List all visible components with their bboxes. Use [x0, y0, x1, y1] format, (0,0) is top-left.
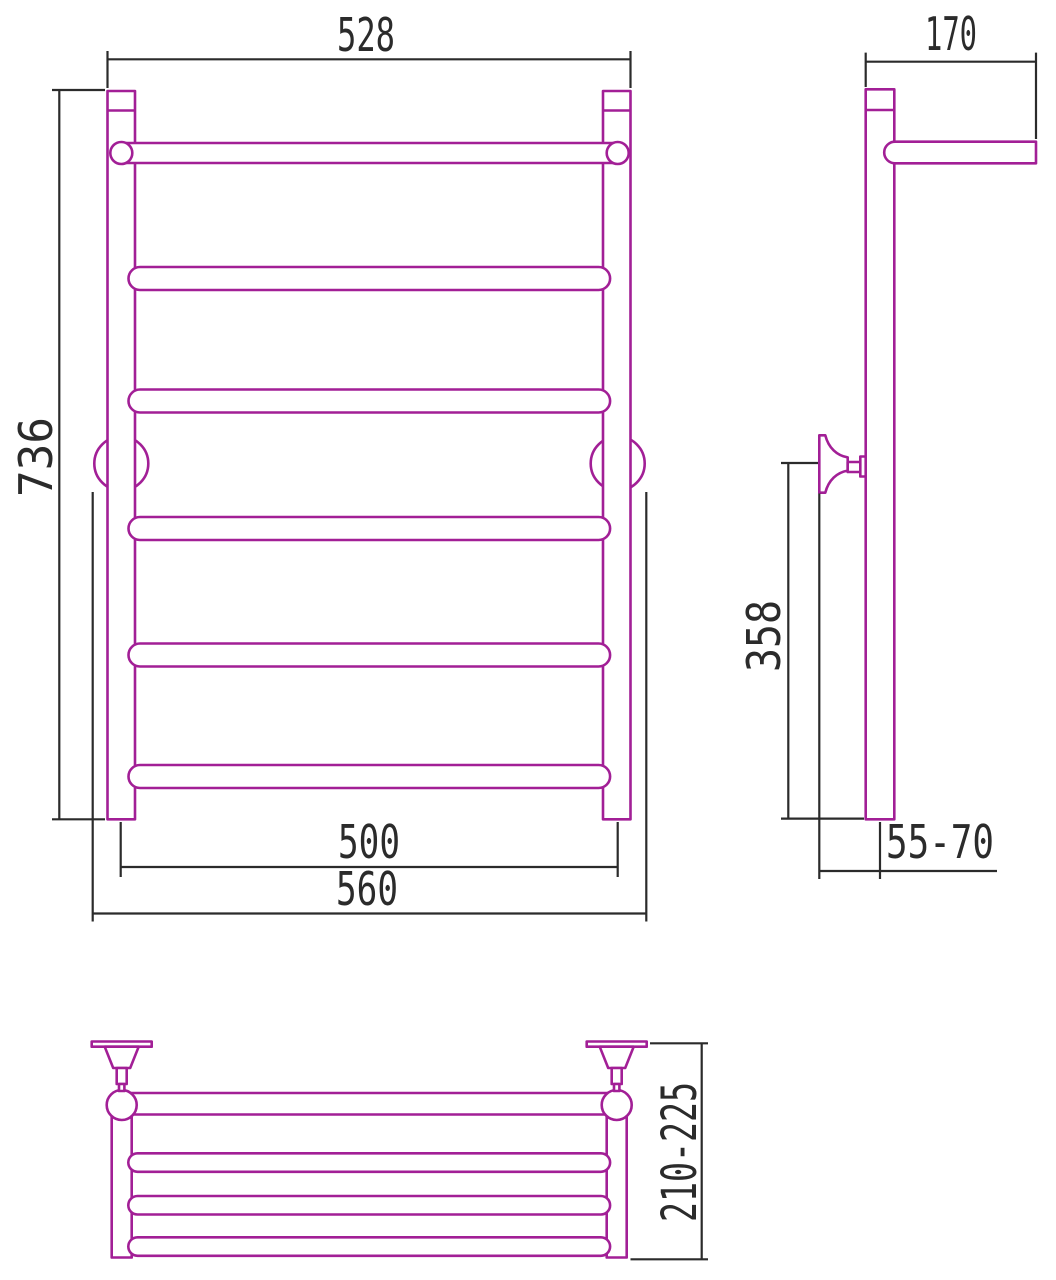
front-view	[94, 91, 644, 819]
plan-right-bracket-cone	[600, 1047, 634, 1068]
plan-back-rail	[122, 1093, 617, 1115]
dim-210-225-label: 210-225	[652, 1082, 708, 1222]
side-view	[819, 89, 1036, 819]
plan-left-side-rail	[112, 1100, 132, 1258]
plan-left-post-ball	[107, 1090, 137, 1120]
plan-right-post-ball	[602, 1090, 632, 1120]
dim-500-label: 500	[338, 815, 400, 869]
front-top-rung-right-ball	[607, 142, 629, 164]
front-rung-5	[129, 644, 611, 667]
dim-528-label: 528	[337, 8, 395, 62]
plan-slat-2	[128, 1196, 610, 1215]
towel-rail-dimension-drawing: 528 736 500 560 170 358 55-70	[0, 0, 1056, 1280]
plan-left-bracket-pin	[117, 1068, 127, 1084]
plan-left-bracket-neck	[119, 1084, 124, 1091]
front-top-rung	[121, 143, 617, 163]
plan-slat-3	[128, 1237, 610, 1256]
front-left-post	[108, 91, 136, 819]
side-wall-bracket-pin	[848, 462, 861, 472]
plan-right-side-rail	[607, 1100, 627, 1258]
side-wall-bracket-flange	[819, 435, 847, 492]
plan-right-bracket-pin	[612, 1068, 622, 1084]
front-rung-2	[129, 267, 611, 290]
dim-170-label: 170	[925, 7, 977, 61]
side-post	[866, 89, 895, 819]
front-rung-6	[129, 765, 611, 788]
plan-view	[92, 1042, 647, 1258]
front-top-rung-left-ball	[110, 142, 132, 164]
plan-right-bracket-neck	[614, 1084, 619, 1091]
dim-line-358	[781, 463, 864, 819]
front-right-post	[603, 91, 631, 819]
dim-358-label: 358	[737, 600, 791, 672]
dim-736-label: 736	[9, 417, 63, 497]
plan-left-bracket-cone	[105, 1047, 139, 1068]
front-rung-4	[129, 517, 611, 540]
technical-drawing-page: 528 736 500 560 170 358 55-70	[0, 0, 1056, 1280]
dim-55-70-label: 55-70	[886, 815, 994, 869]
plan-view-dimensions: 210-225	[631, 1043, 709, 1259]
front-rung-3	[129, 390, 611, 413]
side-top-rung	[884, 142, 1036, 164]
dim-560-label: 560	[336, 862, 398, 916]
plan-slat-1	[128, 1153, 610, 1172]
